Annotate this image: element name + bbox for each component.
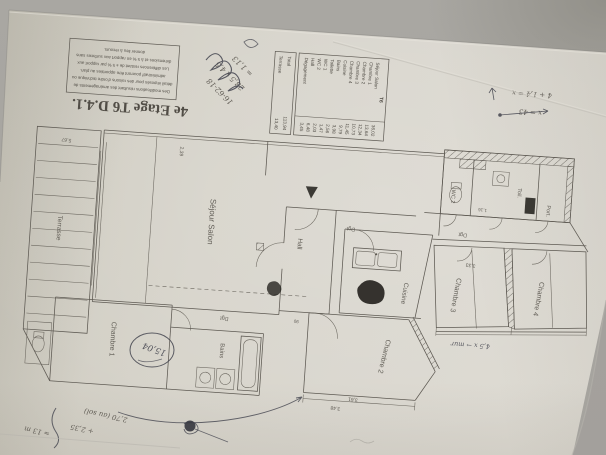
marker-blob-large <box>356 279 385 305</box>
schedule-row-label: Chambre 4 <box>348 61 355 84</box>
floor-plan-drawing: Terrasse 5,67 Séjour Salon 2,39 <box>0 0 606 455</box>
sejour-salon-room: Séjour Salon 2,39 <box>90 130 444 326</box>
toil-label: Toil. <box>516 188 523 199</box>
schedule-row-area: 11,45 <box>344 123 350 135</box>
chambre1-area: Chambre 1 <box>20 295 265 396</box>
schedule-rows: Séjour Salon36,02Chambre 113,64Chambre 2… <box>299 57 381 137</box>
dim-terrasse: 5,67 <box>61 136 72 143</box>
hand-brace <box>52 408 59 448</box>
schedule-row-area: 2,03 <box>312 123 318 133</box>
bains-label: Bains <box>218 343 225 358</box>
hall-area: Hall Dgt Dgt <box>219 181 417 334</box>
page-title: 4e Etage T6 D.4.1. <box>71 95 188 119</box>
schedule-row-area: 36,02 <box>370 125 376 137</box>
terrasse-room: Terrasse 5,67 <box>23 126 101 333</box>
schedule-row-label: Dégagement <box>302 57 309 84</box>
dgt3-label: Dgt <box>458 231 468 238</box>
dim-chambre2b: 3,48 <box>330 404 341 411</box>
port-label: Port. <box>544 205 551 217</box>
schedule-row-label: Chambre 2 <box>361 61 368 84</box>
schedule-header: T6 <box>377 97 383 103</box>
handwriting-mur: 4,5 x → mur <box>450 340 491 351</box>
disclaimer-box: Des modifications résultant des aménagem… <box>66 38 179 100</box>
pen-loop <box>244 39 258 47</box>
schedule-row-area: 10,73 <box>351 123 357 135</box>
entrance-arrow <box>305 186 318 199</box>
dim-chambre3: 3,33 <box>465 261 476 268</box>
column <box>256 243 263 250</box>
chambre3-chambre4: Chambre 3 Chambre 4 3,33 <box>428 241 592 346</box>
chambre3-label: Chambre 3 <box>448 277 461 312</box>
chambre1-label: Chambre 1 <box>108 322 117 357</box>
schedule-row-area: 12,34 <box>357 124 363 136</box>
paper-top-edge <box>9 10 606 52</box>
paper-crease <box>333 42 606 117</box>
paper-right-edge-curl <box>572 300 606 455</box>
handwriting-circled: 15,04 <box>141 340 167 358</box>
dim-wc: 1,16 <box>477 207 487 213</box>
bains-room: Bains <box>166 327 263 395</box>
schedule-row-label: WC 2 <box>316 58 322 70</box>
dashed-beam-line <box>149 285 309 296</box>
schedule-row-label: Hall <box>310 58 316 66</box>
basin-icon <box>196 367 215 388</box>
leader-curve <box>118 397 302 423</box>
sejour-label: Séjour Salon <box>206 199 218 245</box>
dark-duct <box>524 198 535 215</box>
wc-block: WC 2 Toil. Port. 1,16 <box>440 150 574 223</box>
terrasse-row-label: Terrasse <box>277 56 283 74</box>
dgt1-label: Dgt <box>346 225 356 232</box>
schedule-row-label: Chambre 3 <box>354 61 361 84</box>
schedule-row-label: Toilette <box>329 59 335 74</box>
party-wall <box>498 248 520 329</box>
schedule-row-area: 6,48 <box>305 123 311 133</box>
faint-pencil-mark <box>350 439 374 443</box>
hatched-wall <box>405 317 443 372</box>
dgt2-label: Dgt <box>219 314 229 321</box>
terrasse-label: Terrasse <box>54 215 63 241</box>
dim-door: 90 <box>293 318 299 324</box>
schedule-row-label: Chambre 1 <box>367 62 374 85</box>
schedule-row-area: 2,56 <box>325 124 331 134</box>
schedule-row-label: Bains <box>336 60 342 73</box>
schedule-row-area: 1,47 <box>318 124 324 134</box>
schedule-row-area: 9,79 <box>338 125 344 135</box>
chambre2-label: Chambre 2 <box>376 339 391 374</box>
handwriting-floor2: + 2,35 <box>69 422 94 435</box>
chambre3-door-arc <box>457 247 472 262</box>
terrasse-row-value: 13,40 <box>273 118 279 130</box>
ink-blot <box>184 421 228 443</box>
cuisine-room: Cuisine <box>266 224 433 319</box>
handwriting-floor1: 2,70 (au sol) <box>83 407 129 424</box>
duct-shaft <box>460 159 487 170</box>
basin-icon-2 <box>216 368 235 389</box>
schedule-row-label: WC 1 <box>323 59 329 71</box>
entrance-door-arc <box>295 208 318 231</box>
sink-icon <box>492 171 509 186</box>
wc2-label: WC 2 <box>449 189 456 203</box>
under-sheet-edge <box>0 434 180 448</box>
handwriting-xnote1: 4 + 1,4 = x <box>512 89 554 100</box>
cuisine-label: Cuisine <box>399 282 409 305</box>
floor-plan: Terrasse 5,67 Séjour Salon 2,39 <box>19 121 598 428</box>
photo-of-floor-plan: Terrasse 5,67 Séjour Salon 2,39 <box>0 0 606 455</box>
paper-left-edge <box>0 10 9 182</box>
disclaimer-line-6: donner lieu à recours. <box>103 47 145 55</box>
title-group: 4e Etage T6 D.4.1. <box>71 95 188 119</box>
chambre4-label: Chambre 4 <box>531 281 544 316</box>
total-value: 113,94 <box>282 116 288 130</box>
schedule-table: T6 Séjour Salon36,02Chambre 113,64Chambr… <box>270 51 389 141</box>
chambre2-room: Chambre 2 3,61 3,48 90 <box>287 309 443 419</box>
schedule-row-area: 3,98 <box>331 125 337 135</box>
total-label: Total <box>286 56 292 66</box>
schedule-row-label: Cuisine <box>342 60 348 76</box>
schedule-row-area: 13,64 <box>364 124 370 136</box>
circled-handwriting: 15,04 <box>130 333 174 367</box>
chambre4-door-arc <box>532 250 547 265</box>
schedule-row-area: 3,45 <box>299 122 305 132</box>
chambre2-door-arc <box>313 313 339 339</box>
hall-label: Hall <box>295 238 303 250</box>
dim-sejour: 2,39 <box>178 146 185 156</box>
